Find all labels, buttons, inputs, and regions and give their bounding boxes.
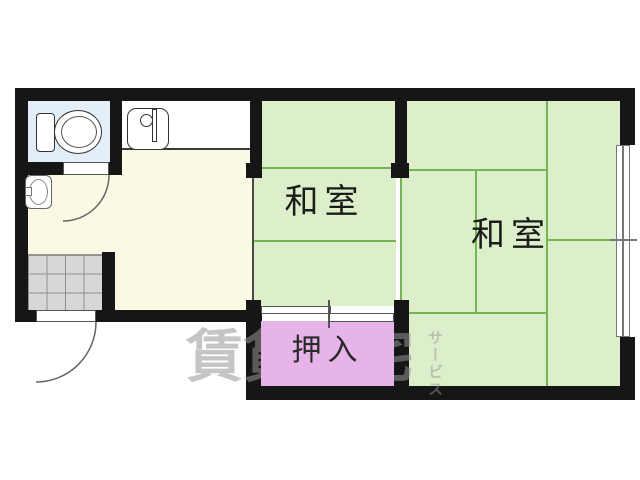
room-label-closet: 押入: [261, 336, 394, 366]
wall-kitchen-bottom-left: [15, 310, 36, 322]
hinged-door-toilet: [63, 162, 109, 175]
wall-right-upper: [620, 88, 635, 145]
sliding-door-closet-panel-left: [261, 306, 331, 314]
tatami-line: [253, 167, 396, 169]
toilet-icon: [36, 113, 55, 152]
tatami-line: [401, 312, 547, 314]
window-center-tick: [610, 239, 637, 241]
wall-center-room-left: [250, 101, 262, 163]
entrance-tile-floor: [28, 254, 102, 311]
wall-center-room-right: [395, 101, 407, 163]
basin-faucet-icon: [25, 187, 32, 196]
wall-kitchen-bottom-right: [96, 310, 262, 322]
tatami-line: [253, 240, 396, 242]
window-track-line: [622, 146, 624, 336]
wall-toilet-bottom: [15, 162, 63, 175]
wall-pier: [391, 163, 409, 178]
hinged-door-entrance: [36, 310, 96, 322]
wall-pier: [246, 163, 262, 178]
sliding-door-closet-panel-right: [329, 313, 394, 322]
floor-plan: 和室 和室 賃貸住宅 サービス 押入: [0, 0, 640, 480]
sink-faucet-icon: [152, 109, 157, 142]
wall-right-lower: [620, 337, 635, 400]
door-arc-entrance: [36, 322, 96, 382]
wall-toilet-bottom-stub: [108, 162, 122, 175]
toilet-bowl-inner: [61, 116, 97, 148]
room-label-washitsu-right: 和室: [401, 219, 621, 253]
sliding-door-center-tick: [328, 300, 330, 328]
wall-toilet-right: [110, 101, 122, 162]
tatami-line: [401, 169, 547, 171]
room-label-washitsu-center: 和室: [253, 186, 396, 220]
wall-top: [15, 88, 635, 101]
watermark-text-vertical: サービス: [426, 330, 441, 392]
